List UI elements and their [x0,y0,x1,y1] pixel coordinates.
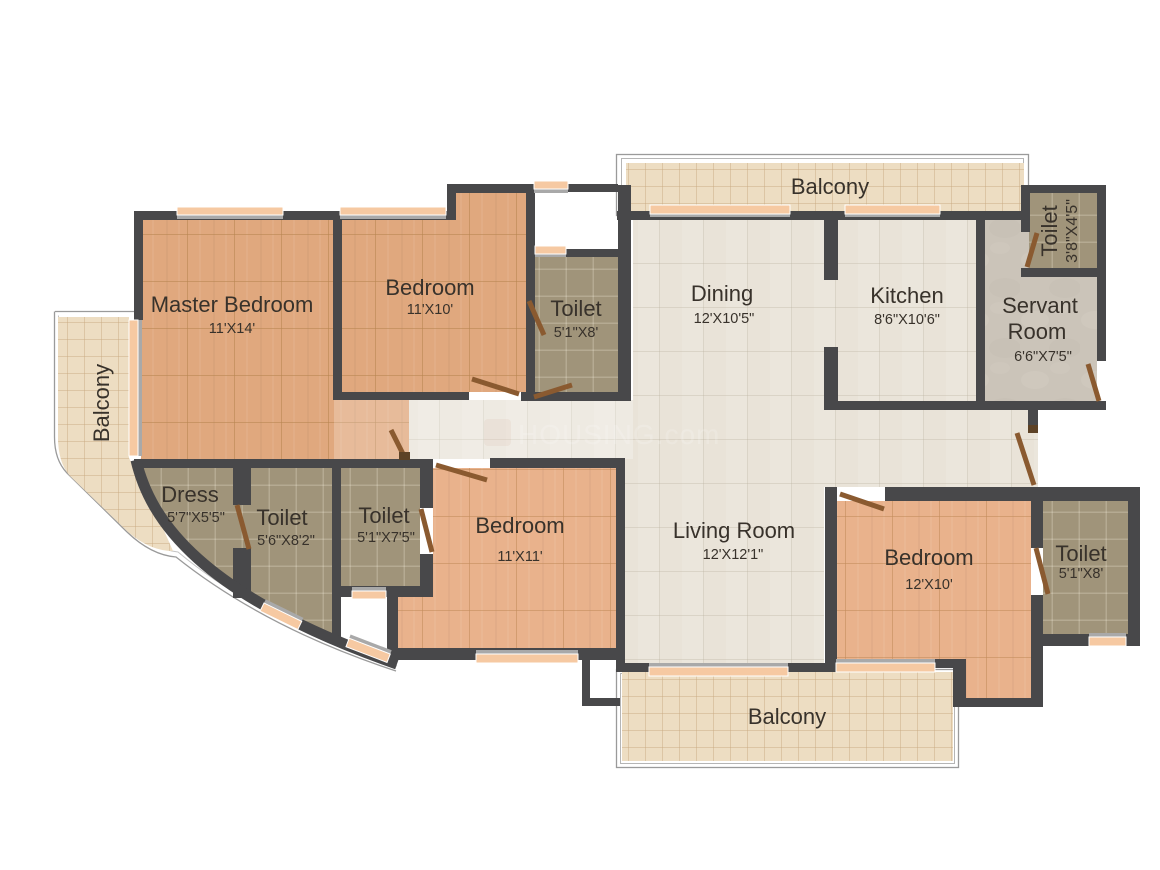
svg-text:3'8"X4'5": 3'8"X4'5" [1064,199,1081,263]
svg-text:5'7"X5'5": 5'7"X5'5" [167,510,225,526]
svg-text:Toilet: Toilet [256,505,307,530]
svg-text:Room: Room [1008,319,1067,344]
svg-text:Toilet: Toilet [550,296,601,321]
svg-text:5'6"X8'2": 5'6"X8'2" [257,533,315,549]
svg-text:Dress: Dress [161,482,218,507]
svg-text:5'1"X8': 5'1"X8' [1059,566,1104,582]
svg-text:Toilet: Toilet [1037,205,1062,256]
svg-text:11'X10': 11'X10' [407,302,454,318]
svg-text:12'X12'1": 12'X12'1" [703,547,764,563]
svg-text:Bedroom: Bedroom [475,513,564,538]
svg-text:6'6"X7'5": 6'6"X7'5" [1014,349,1072,365]
svg-text:HOUSING.com: HOUSING.com [518,419,720,450]
svg-text:Bedroom: Bedroom [884,545,973,570]
svg-text:Toilet: Toilet [358,503,409,528]
svg-text:Balcony: Balcony [89,364,114,442]
svg-text:11'X11': 11'X11' [497,549,543,565]
svg-text:Dining: Dining [691,281,753,306]
svg-text:Servant: Servant [1002,293,1078,318]
svg-text:11'X14': 11'X14' [209,321,256,337]
svg-text:5'1"X7'5": 5'1"X7'5" [357,530,415,546]
svg-text:Balcony: Balcony [748,704,826,729]
svg-text:5'1"X8': 5'1"X8' [554,325,599,341]
svg-text:Master Bedroom: Master Bedroom [151,292,314,317]
svg-text:Bedroom: Bedroom [385,275,474,300]
svg-text:Living Room: Living Room [673,518,795,543]
svg-text:Kitchen: Kitchen [870,283,943,308]
svg-text:8'6"X10'6": 8'6"X10'6" [874,312,940,328]
svg-text:Balcony: Balcony [791,174,869,199]
svg-text:12'X10'5": 12'X10'5" [694,311,755,327]
svg-text:12'X10': 12'X10' [905,577,953,593]
svg-text:Toilet: Toilet [1055,541,1106,566]
